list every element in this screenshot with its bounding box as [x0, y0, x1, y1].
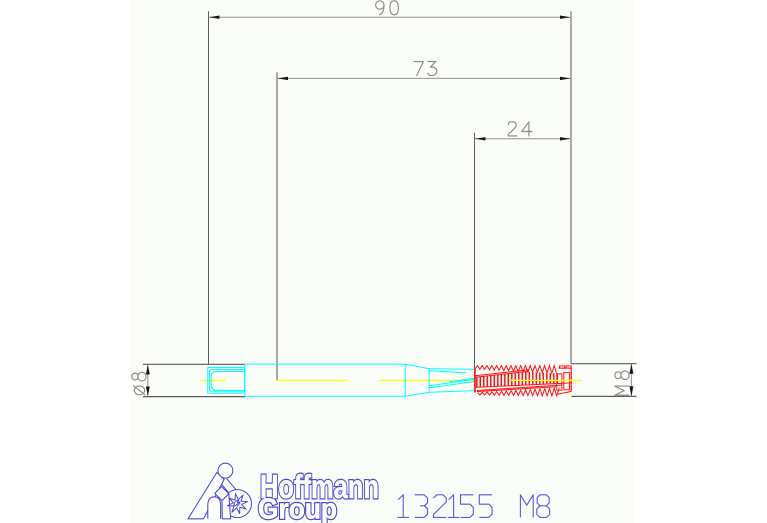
svg-text:Group: Group [258, 494, 337, 523]
